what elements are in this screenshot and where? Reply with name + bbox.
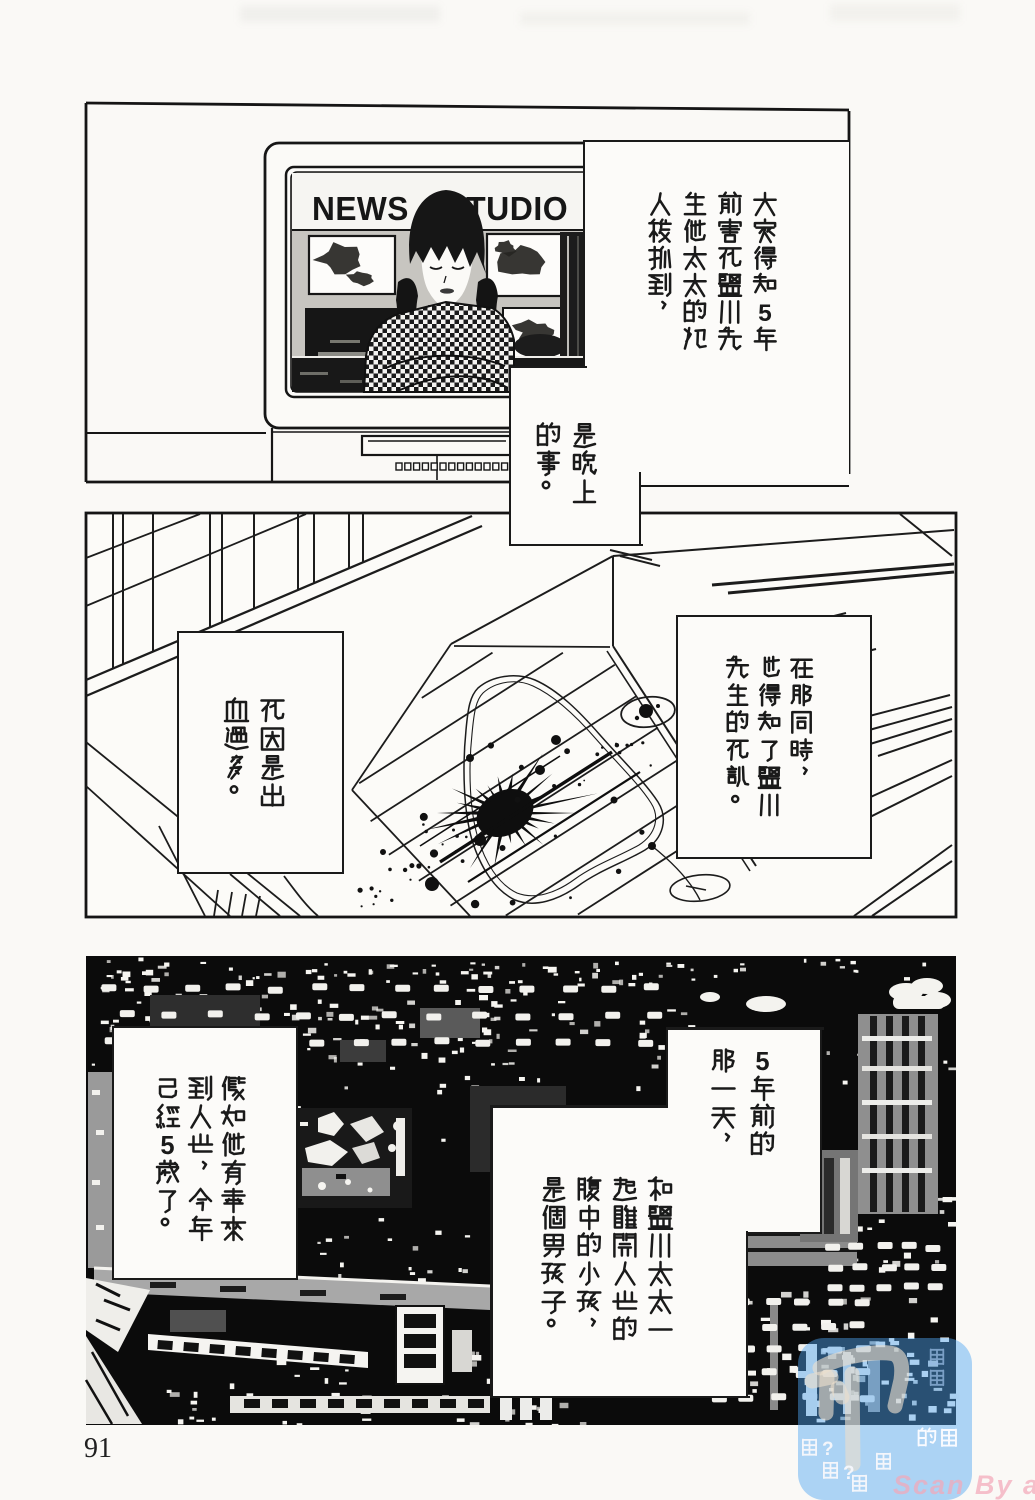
svg-text:5: 5	[160, 1132, 174, 1160]
svg-text:?: ?	[843, 1463, 855, 1484]
svg-text:5: 5	[758, 300, 772, 327]
svg-text:?: ?	[822, 1439, 834, 1460]
svg-text:5: 5	[755, 1048, 769, 1076]
svg-text:Scan By aQ: Scan By aQ	[893, 1470, 1035, 1500]
